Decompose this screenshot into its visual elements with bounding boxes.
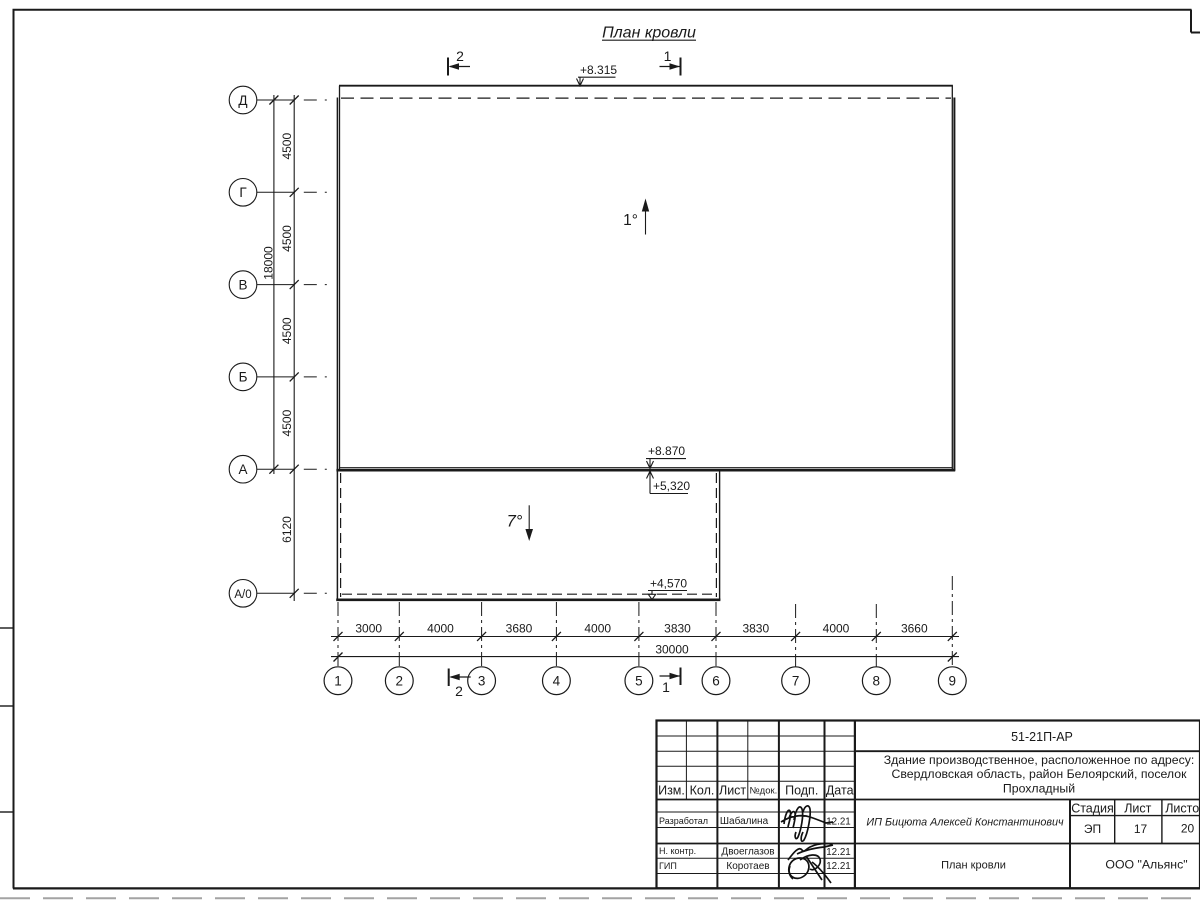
svg-text:51-21П-АР: 51-21П-АР (1011, 730, 1073, 744)
svg-text:А/0: А/0 (234, 589, 251, 601)
svg-text:№док.: №док. (749, 786, 777, 797)
svg-text:Д: Д (238, 93, 247, 108)
svg-text:7°: 7° (507, 513, 523, 531)
svg-text:+8.870: +8.870 (648, 444, 685, 458)
svg-text:3: 3 (478, 674, 486, 689)
svg-text:3680: 3680 (506, 621, 533, 635)
svg-text:Прохладный: Прохладный (1003, 782, 1075, 796)
svg-text:ИП Бицюта Алексей Константинов: ИП Бицюта Алексей Константинович (866, 817, 1064, 829)
svg-text:2: 2 (396, 674, 404, 689)
svg-text:План кровли: План кровли (602, 25, 696, 42)
svg-text:17: 17 (1134, 822, 1148, 836)
svg-text:Лист: Лист (1124, 802, 1151, 816)
svg-text:12.21: 12.21 (826, 861, 851, 872)
svg-text:3830: 3830 (664, 621, 691, 635)
svg-text:Б: Б (239, 370, 248, 385)
svg-text:4000: 4000 (823, 621, 850, 635)
svg-text:+4,570: +4,570 (650, 577, 687, 591)
svg-text:Лист: Лист (719, 784, 746, 798)
svg-text:7: 7 (792, 674, 800, 689)
svg-text:Н. контр.: Н. контр. (659, 846, 696, 856)
svg-text:Шабалина: Шабалина (720, 815, 769, 827)
svg-text:1: 1 (664, 48, 672, 64)
svg-text:ЭП: ЭП (1084, 822, 1101, 836)
svg-text:1: 1 (662, 679, 670, 695)
svg-text:Дата: Дата (826, 784, 854, 798)
svg-text:Кол.: Кол. (690, 784, 715, 798)
svg-text:А: А (238, 462, 247, 477)
svg-text:30000: 30000 (655, 643, 689, 657)
svg-text:3660: 3660 (901, 621, 928, 635)
svg-text:1°: 1° (623, 212, 638, 229)
svg-text:3000: 3000 (355, 621, 382, 635)
svg-text:ООО "Альянс": ООО "Альянс" (1105, 858, 1187, 872)
svg-text:4500: 4500 (280, 409, 294, 436)
svg-text:4000: 4000 (584, 621, 611, 635)
svg-text:В: В (238, 277, 247, 292)
svg-text:12.21: 12.21 (826, 847, 851, 858)
svg-text:5: 5 (635, 674, 643, 689)
svg-text:20: 20 (1181, 822, 1195, 836)
svg-text:4500: 4500 (280, 133, 294, 160)
svg-text:+5,320: +5,320 (653, 479, 690, 493)
svg-text:Подп.: Подп. (785, 784, 818, 798)
svg-text:8: 8 (873, 674, 881, 689)
svg-text:Разработал: Разработал (659, 816, 708, 826)
svg-text:Изм.: Изм. (658, 784, 685, 798)
svg-text:4000: 4000 (427, 621, 454, 635)
svg-text:Коротаев: Коротаев (726, 861, 769, 872)
svg-text:3830: 3830 (742, 621, 769, 635)
svg-text:2: 2 (455, 683, 463, 699)
svg-text:6: 6 (712, 674, 720, 689)
svg-text:2: 2 (456, 48, 464, 64)
svg-text:18000: 18000 (262, 246, 276, 280)
svg-text:4500: 4500 (280, 225, 294, 252)
svg-text:4500: 4500 (280, 317, 294, 344)
svg-text:6120: 6120 (280, 516, 294, 543)
svg-text:ГИП: ГИП (659, 861, 677, 871)
svg-text:+8.315: +8.315 (580, 63, 617, 77)
svg-text:Здание производственное, распо: Здание производственное, расположенное п… (884, 753, 1195, 767)
svg-text:9: 9 (949, 674, 957, 689)
svg-text:Листов: Листов (1165, 802, 1200, 816)
svg-text:1: 1 (334, 674, 342, 689)
svg-text:План кровли: План кровли (941, 860, 1006, 872)
svg-text:Стадия: Стадия (1071, 802, 1114, 816)
svg-text:Г: Г (239, 185, 247, 200)
svg-text:Свердловская область, район Бе: Свердловская область, район Белоярский, … (892, 767, 1188, 781)
svg-text:Двоеглазов: Двоеглазов (721, 846, 774, 857)
svg-text:4: 4 (553, 674, 561, 689)
